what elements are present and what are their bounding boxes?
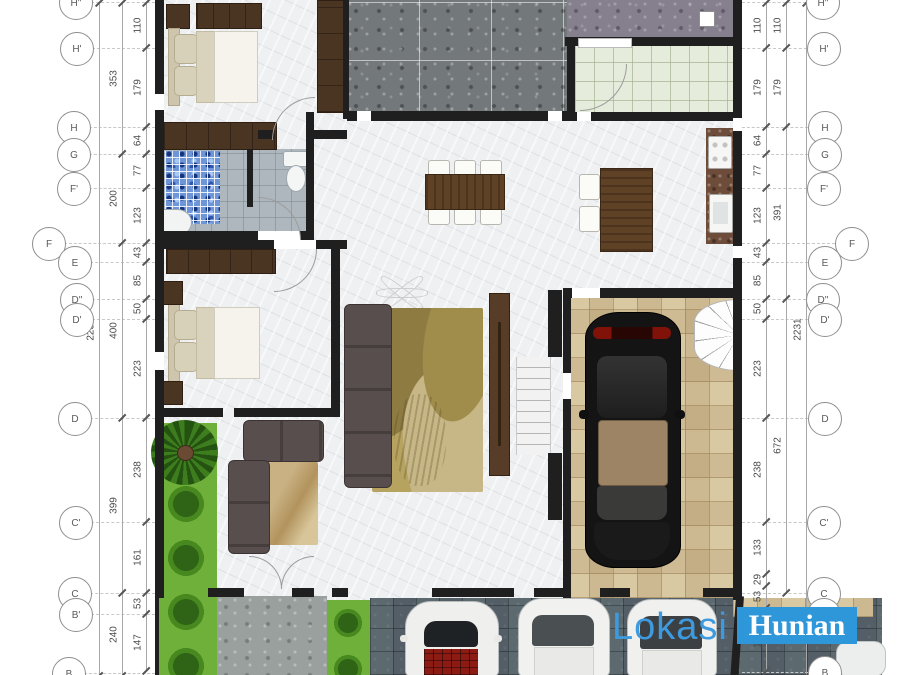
dim-label: 353 (109, 56, 120, 100)
entry-terrace-floor (217, 596, 327, 675)
door-gap (572, 288, 600, 298)
dimension-line (99, 3, 100, 675)
window-serviceroom (578, 38, 632, 48)
bed-mattress (214, 31, 258, 103)
wall-front-dash (600, 588, 630, 597)
car-windshield (532, 615, 594, 646)
door-gap (563, 373, 571, 399)
car-street-van (518, 598, 608, 675)
grid-leader-line (742, 522, 807, 523)
grid-bubble-E: E (808, 246, 842, 280)
courtyard-gravel-floor (347, 0, 567, 119)
wall-right-outer (733, 0, 742, 600)
grid-bubble-Cp: C' (59, 506, 93, 540)
car-tailgate-red (424, 649, 478, 675)
wall-front-dash (703, 588, 737, 597)
dim-label: 147 (133, 620, 144, 664)
wall-courtyard-left (343, 0, 349, 119)
dimension-line (146, 3, 147, 671)
dim-label: 200 (109, 176, 120, 220)
grid-bubble-Hp: H' (60, 32, 94, 66)
dim-label: 179 (773, 65, 784, 109)
car-garage (585, 312, 679, 566)
wall-front-dash (534, 588, 566, 597)
grid-bubble-D: D (58, 402, 92, 436)
dim-label: 238 (133, 448, 144, 492)
wall-bedroom2-bottom (234, 408, 340, 417)
grid-bubble-Hpp: H'' (806, 0, 840, 20)
grid-bubble-Dp: D' (808, 303, 842, 337)
grid-leader-line (742, 418, 808, 419)
wall-bedroom1-bottom (314, 130, 347, 139)
car-roof (642, 650, 702, 675)
sofa-corner (228, 460, 270, 554)
wardrobe-top (196, 3, 262, 29)
car-mirror (579, 410, 589, 419)
bed-master (168, 28, 258, 104)
dim-label: 672 (773, 424, 784, 468)
bed-pillow (174, 66, 198, 96)
small-rug (268, 462, 318, 545)
bed-pillow (174, 342, 198, 372)
car-roof (534, 647, 594, 675)
kitchen-sink (709, 194, 733, 233)
dim-label: 240 (109, 612, 120, 656)
grid-leader-line (742, 48, 807, 49)
window-gap (155, 352, 164, 370)
dim-label: 400 (109, 308, 120, 352)
console-groove (498, 322, 501, 446)
grid-bubble-D: D (808, 402, 842, 436)
palm-trunk (177, 445, 194, 461)
window-gap (733, 118, 742, 131)
dim-label: 50 (133, 287, 144, 331)
car-roof (598, 420, 668, 486)
car-mirror (400, 635, 408, 642)
staircase-treads (516, 357, 551, 455)
wall-left-property-line (155, 598, 159, 675)
grid-bubble-Cp: C' (807, 506, 841, 540)
dim-label: 53 (133, 581, 144, 625)
dim-label: 223 (753, 346, 764, 390)
dim-label: 110 (133, 3, 144, 47)
dim-label: 223 (133, 346, 144, 390)
wall-courtyard-bottom (347, 111, 567, 121)
car-windshield (597, 486, 667, 520)
car-mirror (494, 635, 502, 642)
wall-bedroom2-right (331, 240, 340, 416)
stove (708, 136, 732, 169)
car-mirror (675, 410, 685, 419)
car-hood (594, 522, 670, 560)
wall-stair-lower (548, 453, 562, 520)
wall-front-dash (332, 588, 348, 597)
grid-bubble-Hpp: H'' (59, 0, 93, 20)
wall-front-dash (292, 588, 314, 597)
car-taillights (593, 327, 671, 339)
grid-bubble-Hp: H' (807, 32, 841, 66)
wall-bath-divider (247, 149, 253, 207)
sofa-horizontal (243, 420, 324, 462)
bed-pillow (174, 34, 198, 64)
grid-bubble-G: G (57, 138, 91, 172)
wall-bedroom2-bottom (163, 408, 223, 417)
wardrobe-bedroom2 (166, 249, 276, 274)
watermark-lokasi: Lokasi (612, 606, 728, 649)
wall-stair-upper (548, 290, 562, 357)
wall-serviceroom-bottom (575, 112, 742, 121)
side-gravel-floor (567, 0, 742, 42)
dim-label: 179 (753, 65, 764, 109)
dining-table (425, 174, 505, 210)
light-fixture-marker (699, 11, 715, 27)
grid-bubble-B: B (52, 657, 86, 675)
bed-blanket-fold (196, 31, 216, 103)
dim-label: 238 (753, 448, 764, 492)
dim-label: 50 (753, 287, 764, 331)
grid-bubble-Fp: F' (57, 172, 91, 206)
floorplan-page: H''H'HGF'FED''D'DC'CB'B11017964771234385… (0, 0, 900, 675)
wall-garage-left (563, 288, 571, 598)
grid-bubble-Bp: B' (59, 598, 93, 632)
grid-bubble-G: G (808, 138, 842, 172)
bed-guest (168, 304, 260, 380)
toilet-bowl (286, 165, 306, 192)
dim-label: 77 (753, 149, 764, 193)
dim-label: 399 (109, 483, 120, 527)
dim-label: 77 (133, 149, 144, 193)
grid-leader-line (742, 672, 808, 673)
wall-front-dash (432, 588, 514, 597)
dim-label: 391 (773, 191, 784, 235)
grid-bubble-Fp: F' (807, 172, 841, 206)
car-street-rear (405, 601, 497, 675)
bed-mattress (214, 307, 260, 379)
bed-pillow (174, 310, 198, 340)
wall-left-outer (155, 0, 164, 598)
door-gap (274, 240, 316, 249)
grid-bubble-Dp: D' (60, 303, 94, 337)
dim-label: 110 (773, 3, 784, 47)
dining-chair (579, 206, 600, 232)
pillar-gap (357, 111, 371, 121)
car-rear-window (424, 621, 478, 647)
garden-strip-middle (327, 600, 370, 675)
door-gap (577, 112, 591, 121)
wall-bedroom2-top (163, 240, 347, 249)
rug-pattern (394, 394, 446, 486)
tv-console (489, 293, 510, 476)
watermark-hunian: Hunian (749, 609, 846, 643)
sofa-long (344, 304, 392, 488)
bed-blanket-fold (196, 307, 216, 379)
dimension-line (122, 3, 123, 675)
breakfast-table (600, 168, 653, 252)
dim-label: 161 (133, 535, 144, 579)
window-gap (155, 94, 164, 110)
nightstand (166, 4, 190, 29)
car-street-partial (836, 641, 886, 675)
wall-serviceroom-left (567, 37, 575, 121)
grid-bubble-E: E (58, 246, 92, 280)
pillar-gap (548, 111, 562, 121)
dimension-line (806, 3, 807, 675)
dim-label: 179 (133, 65, 144, 109)
car-rear-window (597, 356, 667, 418)
dim-label: 2231 (793, 308, 804, 352)
dining-chair (579, 174, 600, 200)
wall-front-dash (208, 588, 244, 597)
dim-label: 110 (753, 3, 764, 47)
watermark-box: Hunian (737, 607, 857, 644)
window-gap (733, 246, 742, 258)
